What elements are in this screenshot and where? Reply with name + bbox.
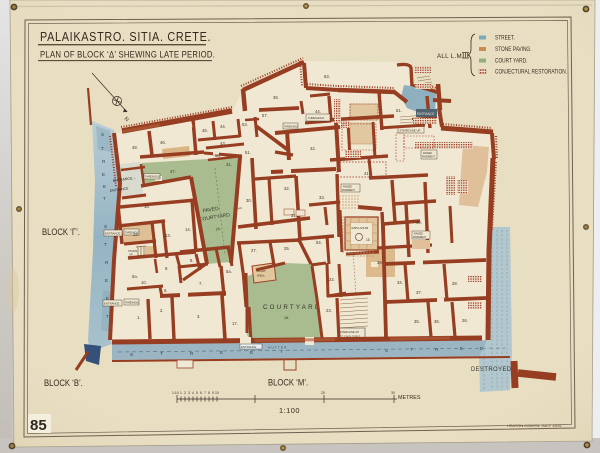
svg-text:41.: 41. — [364, 171, 370, 176]
svg-text:45.: 45. — [202, 128, 208, 133]
svg-text:UP: UP — [129, 253, 133, 257]
svg-text:PLAN OF BLOCK ‘Δ’ SHEWING: PLAN OF BLOCK ‘Δ’ SHEWING LATE PERIOD. — [40, 49, 215, 60]
svg-text:38.: 38. — [273, 95, 279, 100]
svg-text:28.: 28. — [452, 281, 458, 286]
svg-text:1:100: 1:100 — [279, 406, 300, 415]
svg-text:1: 1 — [180, 391, 182, 395]
svg-text:PAVEMENT: PAVEMENT — [422, 156, 435, 159]
svg-text:85: 85 — [30, 417, 47, 434]
svg-text:STAIRCASE UP: STAIRCASE UP — [400, 129, 421, 133]
svg-text:COURT YARD.: COURT YARD. — [495, 58, 528, 65]
svg-text:17.: 17. — [232, 321, 238, 326]
svg-text:23.: 23. — [326, 308, 332, 313]
svg-text:3: 3 — [188, 391, 190, 395]
svg-text:1.: 1. — [137, 315, 141, 320]
svg-text:8.: 8. — [190, 258, 194, 263]
svg-text:E: E — [102, 172, 105, 177]
svg-text:20: 20 — [321, 391, 325, 395]
svg-text:T: T — [103, 196, 106, 201]
svg-text:STAIRS: STAIRS — [128, 249, 137, 253]
svg-text:PAVEMENT: PAVEMENT — [413, 236, 426, 239]
svg-text:22.: 22. — [329, 277, 335, 282]
svg-text:40.: 40. — [416, 220, 422, 225]
svg-text:47.: 47. — [170, 169, 176, 174]
svg-text:16.: 16. — [144, 204, 150, 209]
svg-text:18.: 18. — [284, 316, 289, 320]
svg-text:PALAIKASTRO. SITIA. CRETE.: PALAIKASTRO. SITIA. CRETE. — [40, 30, 211, 44]
svg-text:29.: 29. — [215, 227, 221, 232]
svg-text:T: T — [104, 242, 107, 247]
svg-text:33.: 33. — [319, 195, 325, 200]
svg-text:STREET.: STREET. — [495, 35, 515, 42]
svg-text:6: 6 — [200, 391, 202, 395]
svg-text:13.: 13. — [165, 233, 171, 238]
svg-text:S: S — [385, 348, 388, 353]
svg-text:31.: 31. — [291, 213, 297, 218]
svg-text:48.: 48. — [132, 145, 138, 150]
svg-text:51.: 51. — [245, 150, 251, 155]
svg-text:3.: 3. — [197, 314, 201, 319]
svg-text:ENTRANCE: ENTRANCE — [105, 232, 121, 236]
svg-text:S: S — [101, 132, 104, 137]
svg-text:8: 8 — [208, 391, 210, 395]
svg-text:1:10: 1:10 — [172, 391, 179, 395]
svg-text:30.: 30. — [246, 198, 252, 203]
svg-text:THRESHOLD: THRESHOLD — [308, 116, 324, 120]
svg-text:15.: 15. — [366, 238, 371, 242]
svg-text:30: 30 — [391, 391, 395, 395]
svg-text:DESTROYED: DESTROYED — [471, 366, 511, 374]
svg-text:9: 9 — [212, 391, 214, 395]
svg-text:46.: 46. — [160, 140, 166, 145]
svg-text:2.: 2. — [160, 308, 164, 313]
svg-text:44.: 44. — [220, 124, 226, 129]
svg-text:26.: 26. — [462, 318, 468, 323]
svg-text:7: 7 — [204, 391, 206, 395]
svg-text:IMPLUVIUM: IMPLUVIUM — [352, 226, 369, 230]
svg-text:THRESHOLD: THRESHOLD — [125, 302, 140, 304]
svg-text:ALL L.M.: ALL L.M. — [437, 53, 464, 60]
svg-text:T: T — [106, 314, 109, 319]
svg-text:35.: 35. — [414, 319, 420, 324]
svg-text:39.: 39. — [377, 260, 383, 265]
svg-text:25.: 25. — [284, 246, 290, 251]
svg-text:E: E — [103, 184, 106, 189]
svg-text:ENTRANCE: ENTRANCE — [104, 302, 120, 306]
svg-text:12.: 12. — [133, 232, 139, 237]
svg-text:METRES: METRES — [398, 395, 421, 401]
svg-text:6.: 6. — [164, 288, 168, 293]
svg-text:ENTRANCE: ENTRANCE — [241, 345, 257, 349]
svg-text:27.: 27. — [251, 248, 257, 253]
svg-text:E: E — [220, 350, 223, 355]
svg-text:36.: 36. — [434, 319, 440, 324]
svg-text:PAVEMENT: PAVEMENT — [342, 189, 355, 192]
svg-text:4: 4 — [192, 391, 194, 395]
svg-text:9.: 9. — [165, 266, 169, 271]
svg-text:BLOCK ‘Γ’.: BLOCK ‘Γ’. — [42, 226, 80, 237]
svg-text:WELL: WELL — [257, 274, 266, 278]
svg-text:10: 10 — [215, 391, 219, 395]
svg-text:37.: 37. — [416, 290, 422, 295]
svg-text:THRESHOLD: THRESHOLD — [284, 126, 299, 128]
svg-text:STAIRCASE UP: STAIRCASE UP — [340, 330, 360, 334]
svg-text:STONE PAVING.: STONE PAVING. — [495, 47, 532, 54]
svg-text:T: T — [280, 349, 283, 354]
svg-text:CONJECTURAL RESTORATION.: CONJECTURAL RESTORATION. — [495, 69, 567, 76]
svg-text:53.: 53. — [242, 122, 248, 127]
svg-text:14.: 14. — [185, 227, 191, 232]
svg-text:S: S — [104, 224, 107, 229]
svg-text:HEATON COMYN. JULY 1904.: HEATON COMYN. JULY 1904. — [507, 423, 562, 428]
svg-text:34.: 34. — [397, 280, 403, 285]
svg-text:S: S — [130, 352, 133, 357]
svg-text:COURTYARD: COURTYARD — [263, 304, 321, 311]
svg-text:2: 2 — [184, 391, 186, 395]
svg-text:61.: 61. — [396, 108, 402, 113]
svg-text:T: T — [101, 146, 104, 151]
svg-text:E: E — [105, 278, 108, 283]
svg-text:57.: 57. — [262, 113, 268, 118]
svg-text:THRESHOLD: THRESHOLD — [145, 176, 160, 179]
svg-text:31.: 31. — [226, 162, 232, 167]
svg-text:ENTRANCE: ENTRANCE — [417, 112, 435, 116]
svg-text:T: T — [410, 347, 413, 352]
svg-text:GUTTER: GUTTER — [268, 346, 288, 350]
svg-text:63.: 63. — [324, 74, 330, 79]
svg-text:32.: 32. — [284, 186, 290, 191]
svg-text:BLOCK ‘M’.: BLOCK ‘M’. — [268, 377, 308, 388]
svg-text:10.: 10. — [141, 280, 147, 285]
svg-text:54.: 54. — [316, 240, 322, 245]
svg-text:42.: 42. — [310, 146, 316, 151]
svg-text:6a.: 6a. — [132, 274, 138, 279]
svg-text:43.: 43. — [220, 141, 226, 146]
svg-text:5: 5 — [196, 391, 198, 395]
svg-text:7.: 7. — [199, 281, 203, 286]
svg-text:44.: 44. — [315, 109, 321, 114]
svg-text:BLOCK ‘B’.: BLOCK ‘B’. — [44, 377, 83, 388]
svg-text:50.: 50. — [215, 153, 221, 158]
svg-text:5a.: 5a. — [226, 269, 232, 274]
